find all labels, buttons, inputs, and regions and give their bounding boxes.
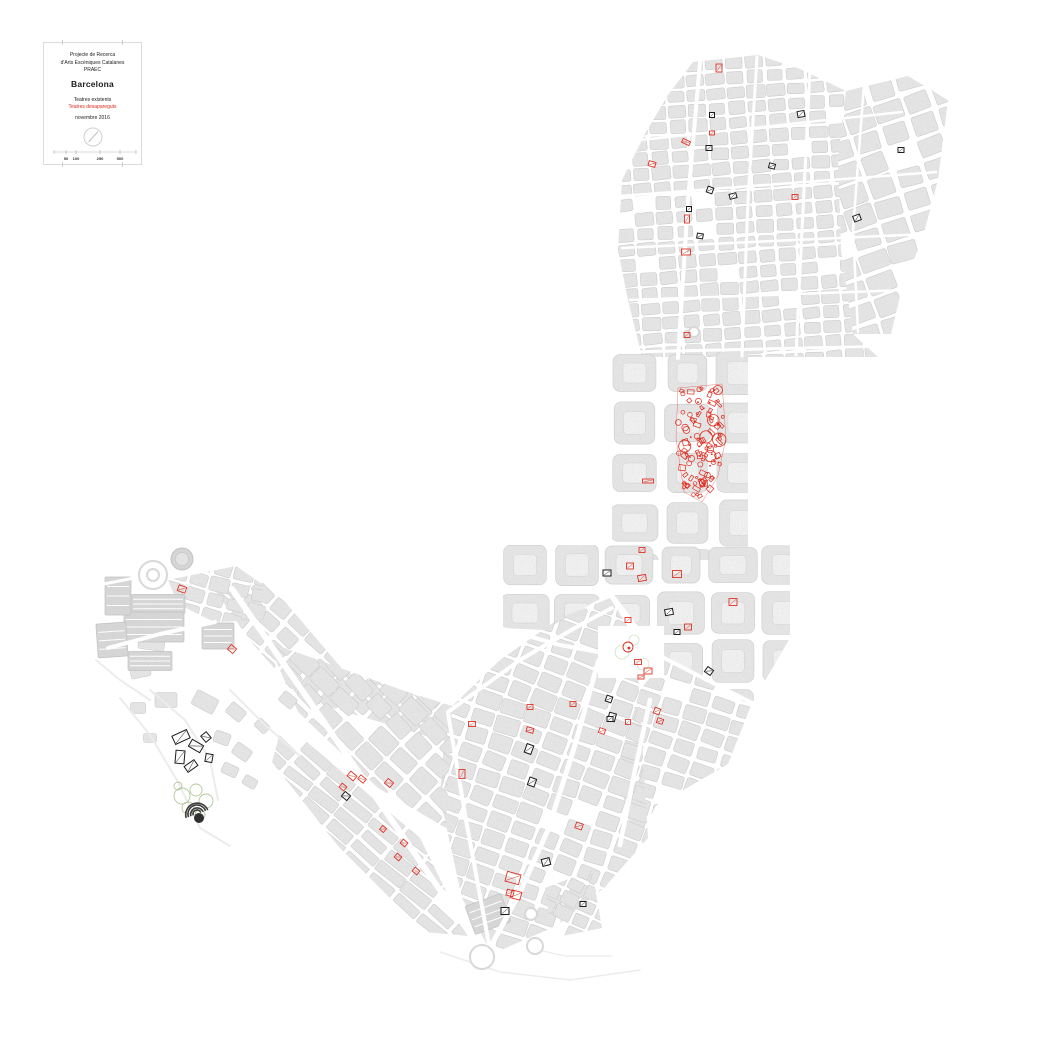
city-title: Barcelona [44,79,141,89]
scale-label-2: 100 [73,156,80,161]
scale-label-4: 500 [117,156,124,161]
compass-icon [82,126,104,148]
crop-mark [122,162,123,167]
legend-existing: Teatres existents [44,97,141,103]
legend-disappeared: Teatres desapareguts [44,104,141,110]
scale-label-1: 50 [64,156,69,161]
barcelona-city-map [0,0,1043,1043]
map-date: novembre 2016 [44,115,141,121]
map-poster: Projecte de Recerca d'Arts Escèniques Ca… [0,0,1043,1043]
crop-mark [62,40,63,45]
crop-mark [62,162,63,167]
project-title: Projecte de Recerca d'Arts Escèniques Ca… [44,52,141,75]
scale-label-3: 250 [97,156,104,161]
project-title-line1: Projecte de Recerca [44,52,141,60]
scale-bar: 50 100 250 500 [44,148,141,162]
project-title-line2: d'Arts Escèniques Catalanes [44,60,141,68]
project-title-line3: PRAEC [44,67,141,75]
title-block: Projecte de Recerca d'Arts Escèniques Ca… [43,42,142,165]
crop-mark [122,40,123,45]
